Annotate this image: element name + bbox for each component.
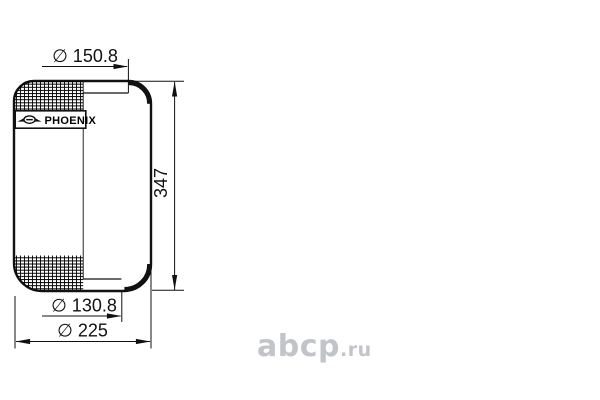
arrowhead-left-icon [15, 339, 30, 344]
bottom-diameter-label: ∅ 130.8 [51, 296, 117, 316]
dimension-bottom-diameter: ∅ 130.8 [42, 291, 122, 322]
abcp-watermark: abcp.ru [257, 329, 372, 364]
air-spring-drawing: PHOENIX ∅ 150.8 347 ∅ 130.8 [0, 0, 600, 400]
height-label: 347 [151, 168, 171, 198]
overall-diameter-label: ∅ 225 [57, 321, 108, 341]
phoenix-logo: PHOENIX [15, 111, 96, 128]
watermark-main: abcp [257, 329, 340, 364]
top-diameter-label: ∅ 150.8 [52, 46, 118, 66]
phoenix-brand-label: PHOENIX [45, 115, 97, 127]
top-section-hatch [14, 81, 83, 110]
watermark-suffix: .ru [340, 339, 372, 361]
arrowhead-up-icon [172, 82, 177, 97]
arrowhead-down-icon [172, 275, 177, 290]
technical-drawing-canvas: PHOENIX ∅ 150.8 347 ∅ 130.8 [0, 0, 600, 400]
arrowhead-right-icon [136, 339, 151, 344]
